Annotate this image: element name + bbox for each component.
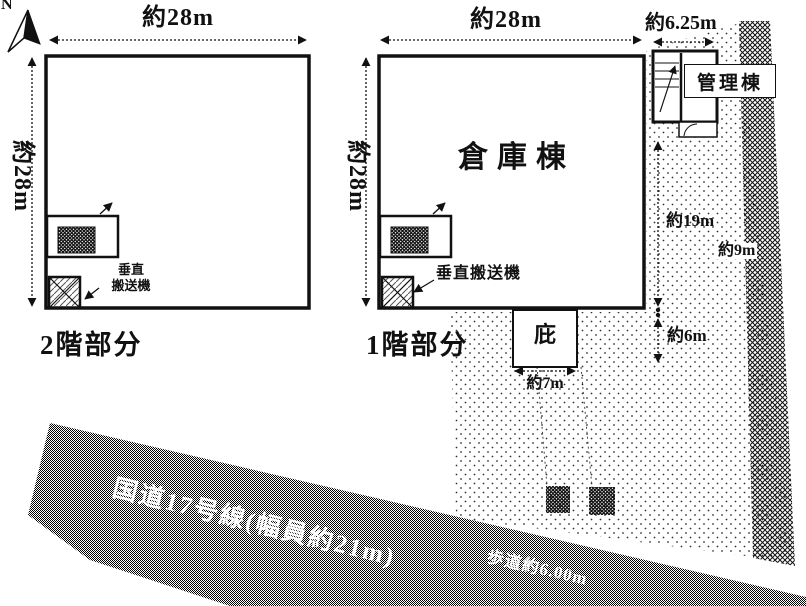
- north-label: N: [1, 0, 13, 13]
- management-label: 管理棟: [697, 68, 763, 95]
- stair-flight-1f: [391, 227, 428, 253]
- entrance-block: [589, 487, 615, 515]
- management-label-box: 管理棟: [684, 64, 776, 98]
- conveyor-label-1f: 垂直搬送機: [436, 266, 521, 282]
- conveyor-label-2f-line1: 垂直: [96, 262, 166, 278]
- warehouse-label: 倉庫棟: [458, 143, 575, 173]
- canopy-label: 庇: [513, 324, 577, 346]
- section-label-2f: 2階部分: [40, 332, 143, 359]
- dim-label-canopy: 約7m: [513, 376, 577, 392]
- dim-label-east-upper: 約19m: [666, 212, 714, 229]
- management-porch: [679, 122, 717, 137]
- conveyor-label-2f: 垂直 搬送機: [96, 262, 166, 293]
- entrance-block: [546, 486, 570, 513]
- building-2f-outline: [46, 56, 309, 308]
- conveyor-label-2f-line2: 搬送機: [96, 278, 166, 294]
- dim-label-management-width: 約6.25m: [645, 13, 717, 33]
- site-plan: N 約28m 約28m 約28m 約28m 約6.25m 約19m 約6m 倉庫…: [0, 0, 806, 606]
- dim-label-east-lower: 約6m: [667, 327, 707, 344]
- north-arrow-icon: [8, 10, 40, 52]
- dim-joint-dot: [656, 308, 660, 312]
- dim-label-1f-height: 約28m: [345, 136, 369, 216]
- section-label-1f: 1階部分: [366, 332, 469, 359]
- stair-flight-2f: [58, 227, 95, 253]
- dim-label-2f-height: 約28m: [10, 136, 34, 216]
- dim-joint-dot: [656, 313, 660, 317]
- dim-label-2f-width: 約28m: [138, 6, 218, 30]
- east-road-width-label: 約9m: [716, 243, 757, 259]
- dim-label-1f-width: 約28m: [466, 8, 546, 32]
